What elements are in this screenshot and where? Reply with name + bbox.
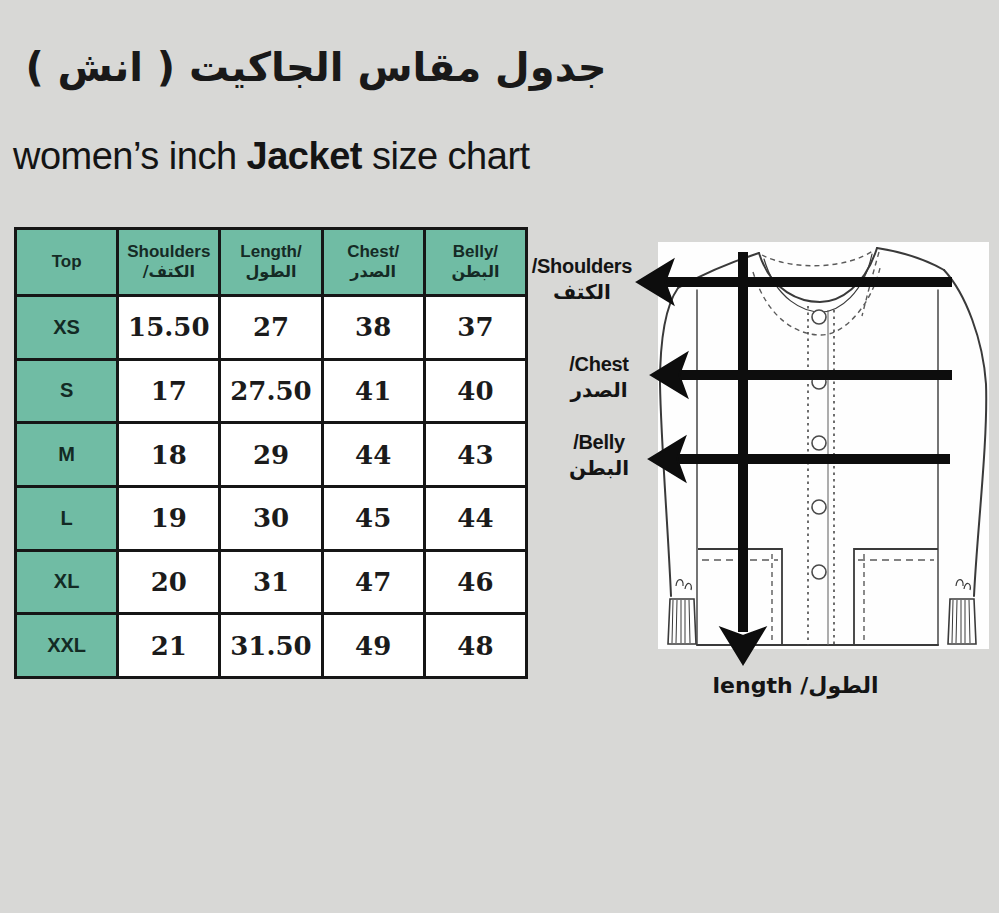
pockets (698, 549, 938, 645)
value-cell: 38 (324, 297, 423, 358)
size-cell-l: L (17, 488, 116, 549)
shoulders-label-ar: الكتف (522, 279, 642, 306)
jacket-image (658, 242, 989, 649)
col-header-chest: Chest/الصدر (324, 230, 423, 294)
buttons (812, 310, 826, 579)
col-header-label-ar: الطول (245, 262, 296, 282)
value-cell: 37 (426, 297, 525, 358)
title-english: women’s inch Jacket size chart (13, 135, 530, 178)
value-cell: 49 (324, 615, 423, 676)
value-cell: 27.50 (221, 361, 320, 422)
value-cell: 18 (119, 424, 218, 485)
value-cell: 29 (221, 424, 320, 485)
col-header-label-ar: الصدر (350, 262, 396, 282)
value-cell: 46 (426, 552, 525, 613)
title-english-prefix: women’s inch (13, 135, 247, 177)
col-header-label: Belly/ (453, 242, 498, 262)
col-header-label: Shoulders (127, 242, 210, 262)
title-arabic: جدول مقاس الجاكيت ( انش ) (0, 44, 632, 90)
value-cell: 44 (324, 424, 423, 485)
size-cell-xxl: XXL (17, 615, 116, 676)
value-cell: 47 (324, 552, 423, 613)
col-header-label: Chest/ (347, 242, 399, 262)
col-header-label: Length/ (240, 242, 301, 262)
value-cell: 19 (119, 488, 218, 549)
jacket-illustration (658, 242, 989, 649)
belly-label: /Belly البطن (549, 430, 649, 482)
col-header-label: Top (52, 252, 82, 272)
value-cell: 45 (324, 488, 423, 549)
title-english-bold: Jacket (247, 135, 362, 177)
col-header-label-ar: البطن (451, 262, 499, 282)
chest-label: /Chest الصدر (549, 352, 649, 404)
shoulders-label: /Shoulders الكتف (522, 254, 642, 306)
size-cell-xs: XS (17, 297, 116, 358)
col-header-label-ar: الكتف/ (143, 262, 195, 282)
front-placket (808, 306, 834, 645)
value-cell: 43 (426, 424, 525, 485)
chest-label-en: /Chest (549, 352, 649, 377)
value-cell: 30 (221, 488, 320, 549)
value-cell: 48 (426, 615, 525, 676)
col-header-belly: Belly/البطن (426, 230, 525, 294)
value-cell: 41 (324, 361, 423, 422)
length-label: length /الطول (630, 672, 961, 700)
value-cell: 40 (426, 361, 525, 422)
size-chart-infographic: جدول مقاس الجاكيت ( انش ) women’s inch J… (0, 0, 999, 913)
col-header-length: Length/الطول (221, 230, 320, 294)
value-cell: 31.50 (221, 615, 320, 676)
shoulders-label-en: /Shoulders (522, 254, 642, 279)
value-cell: 17 (119, 361, 218, 422)
size-table: Top Shouldersالكتف/ Length/الطول Chest/ا… (14, 227, 528, 679)
value-cell: 44 (426, 488, 525, 549)
value-cell: 20 (119, 552, 218, 613)
size-cell-s: S (17, 361, 116, 422)
chest-label-ar: الصدر (549, 377, 649, 404)
value-cell: 15.50 (119, 297, 218, 358)
value-cell: 31 (221, 552, 320, 613)
value-cell: 21 (119, 615, 218, 676)
cuffs (668, 580, 976, 644)
size-cell-xl: XL (17, 552, 116, 613)
value-cell: 27 (221, 297, 320, 358)
col-header-top: Top (17, 230, 116, 294)
size-cell-m: M (17, 424, 116, 485)
belly-label-ar: البطن (549, 455, 649, 482)
col-header-shoulders: Shouldersالكتف/ (119, 230, 218, 294)
belly-label-en: /Belly (549, 430, 649, 455)
title-english-suffix: size chart (362, 135, 530, 177)
